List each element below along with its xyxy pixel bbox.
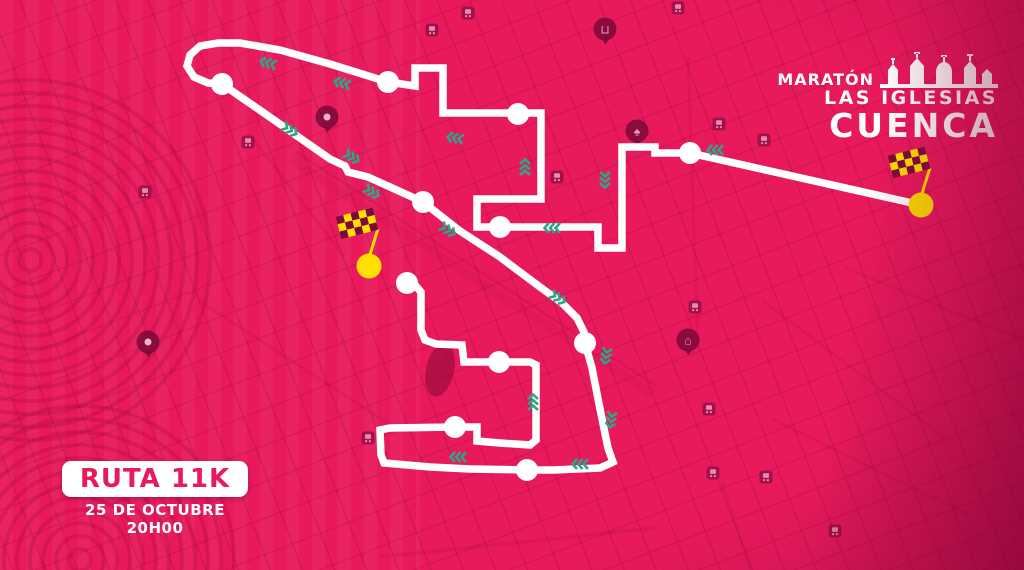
direction-chevron-icon	[599, 171, 612, 189]
direction-chevron-icon	[543, 222, 561, 235]
route-title-badge: RUTA 11K	[62, 461, 248, 497]
direction-chevron-icon	[519, 158, 532, 176]
direction-chevron-icon	[706, 144, 724, 157]
direction-chevron-icon	[449, 451, 467, 464]
direction-chevron-icon	[527, 393, 540, 411]
direction-chevron-icon	[571, 458, 589, 471]
event-logo: MARATÓN LAS IGLESIAS CUENCA	[768, 50, 998, 144]
marathon-route-poster: ⊔ ♠ ⌂	[0, 0, 1024, 570]
route-title: RUTA 11K	[80, 464, 230, 494]
logo-maraton-text: MARATÓN	[777, 72, 874, 88]
event-date-time: 25 DE OCTUBRE 20H00	[62, 501, 248, 537]
logo-cuenca-text: CUENCA	[768, 109, 998, 144]
church-skyline-icon	[880, 50, 998, 88]
